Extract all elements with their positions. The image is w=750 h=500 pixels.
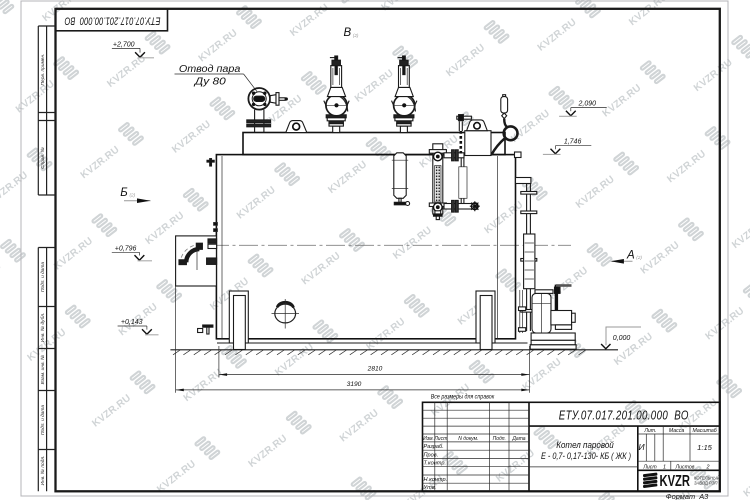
svg-text:Пров.: Пров. bbox=[424, 452, 439, 458]
svg-text:Утв.: Утв. bbox=[423, 485, 437, 491]
svg-text:ЗАВОД РЭП: ЗАВОД РЭП bbox=[694, 481, 718, 486]
svg-text:+0,796: +0,796 bbox=[115, 246, 137, 253]
svg-text:Взам. инв. №: Взам. инв. № bbox=[40, 355, 46, 385]
svg-text:А: А bbox=[626, 250, 635, 262]
svg-text:+2,700: +2,700 bbox=[113, 42, 135, 49]
svg-text:Инв. № подл.: Инв. № подл. bbox=[40, 456, 46, 486]
svg-text:1,746: 1,746 bbox=[564, 139, 582, 146]
svg-text:(2): (2) bbox=[130, 193, 136, 198]
svg-text:ЕТУ.07.017.201.00.000 ВО: ЕТУ.07.017.201.00.000 ВО bbox=[64, 14, 160, 26]
svg-text:Справ. №: Справ. № bbox=[40, 147, 46, 169]
svg-text:И: И bbox=[639, 442, 646, 452]
svg-text:Масса: Масса bbox=[669, 428, 684, 434]
svg-text:Лист: Лист bbox=[433, 436, 447, 442]
svg-text:КОТЕЛЬНЫЙ: КОТЕЛЬНЫЙ bbox=[694, 475, 720, 480]
svg-text:Подп.: Подп. bbox=[493, 436, 506, 442]
svg-text:Изм.: Изм. bbox=[423, 436, 434, 442]
svg-text:Перв. примен.: Перв. примен. bbox=[40, 54, 46, 86]
svg-text:KVZR: KVZR bbox=[660, 473, 691, 490]
svg-text:(2): (2) bbox=[353, 33, 359, 38]
svg-text:Н.контр.: Н.контр. bbox=[424, 477, 448, 483]
svg-text:2810: 2810 bbox=[367, 366, 383, 373]
svg-text:N докум.: N докум. bbox=[458, 436, 478, 442]
svg-text:Дата: Дата bbox=[511, 436, 525, 442]
svg-text:(2): (2) bbox=[636, 255, 642, 260]
svg-text:Подп. и дата: Подп. и дата bbox=[40, 405, 46, 435]
svg-text:Лист: Лист bbox=[642, 464, 657, 470]
svg-text:ЕТУ.07.017.201.00.000 ВО: ЕТУ.07.017.201.00.000 ВО bbox=[559, 409, 689, 423]
svg-text:Е - 0,7- 0,17-130- КБ ( ЖК ): Е - 0,7- 0,17-130- КБ ( ЖК ) bbox=[541, 451, 631, 461]
svg-text:Все размеры для справок: Все размеры для справок bbox=[431, 394, 495, 401]
svg-text:2,090: 2,090 bbox=[578, 101, 597, 108]
svg-text:Листов: Листов bbox=[675, 464, 695, 470]
svg-text:Ду 80: Ду 80 bbox=[194, 77, 227, 88]
svg-text:Отвод пара: Отвод пара bbox=[179, 64, 241, 75]
svg-text:1:15: 1:15 bbox=[697, 443, 713, 452]
svg-text:Инв. № дубл.: Инв. № дубл. bbox=[40, 313, 46, 343]
svg-text:+0,143: +0,143 bbox=[121, 319, 143, 326]
svg-text:0,000: 0,000 bbox=[613, 335, 631, 342]
svg-text:Масштаб: Масштаб bbox=[692, 428, 717, 434]
svg-text:1: 1 bbox=[663, 464, 666, 470]
svg-text:2: 2 bbox=[706, 464, 710, 470]
svg-text:Лит.: Лит. bbox=[643, 428, 656, 434]
svg-text:Б: Б bbox=[120, 187, 128, 199]
svg-text:Формат А3: Формат А3 bbox=[666, 492, 709, 500]
svg-text:В: В bbox=[343, 27, 351, 39]
svg-text:Подп. и дата: Подп. и дата bbox=[40, 262, 46, 292]
svg-text:3190: 3190 bbox=[347, 381, 362, 388]
svg-text:Т.контр.: Т.контр. bbox=[424, 461, 447, 467]
svg-text:Разраб.: Разраб. bbox=[424, 444, 444, 450]
svg-text:Котел паровой: Котел паровой bbox=[556, 440, 614, 451]
